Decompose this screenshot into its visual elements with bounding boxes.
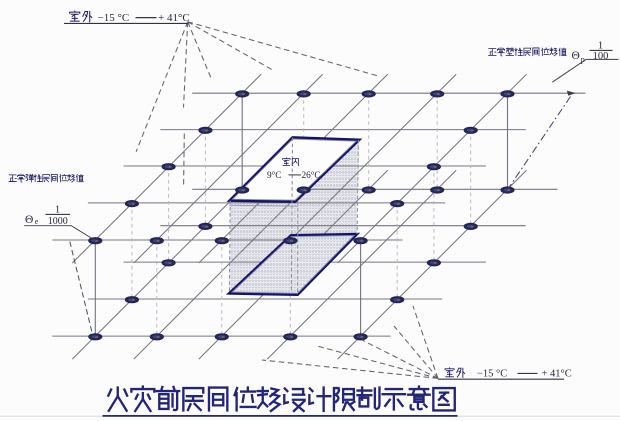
svg-text:−15 °C: −15 °C [477, 368, 507, 379]
svg-text:−15 °C: −15 °C [98, 12, 130, 24]
svg-text:26°C: 26°C [302, 170, 321, 180]
svg-text:1000: 1000 [48, 216, 68, 227]
svg-text:9°C: 9°C [267, 170, 281, 180]
svg-text:100: 100 [593, 51, 609, 62]
svg-text:+ 41°C: + 41°C [158, 12, 190, 24]
svg-text:e: e [35, 217, 39, 226]
svg-text:+ 41°C: + 41°C [542, 368, 572, 379]
svg-text:Θ: Θ [572, 50, 580, 62]
svg-text:Θ: Θ [25, 214, 33, 226]
svg-text:p: p [581, 55, 585, 64]
